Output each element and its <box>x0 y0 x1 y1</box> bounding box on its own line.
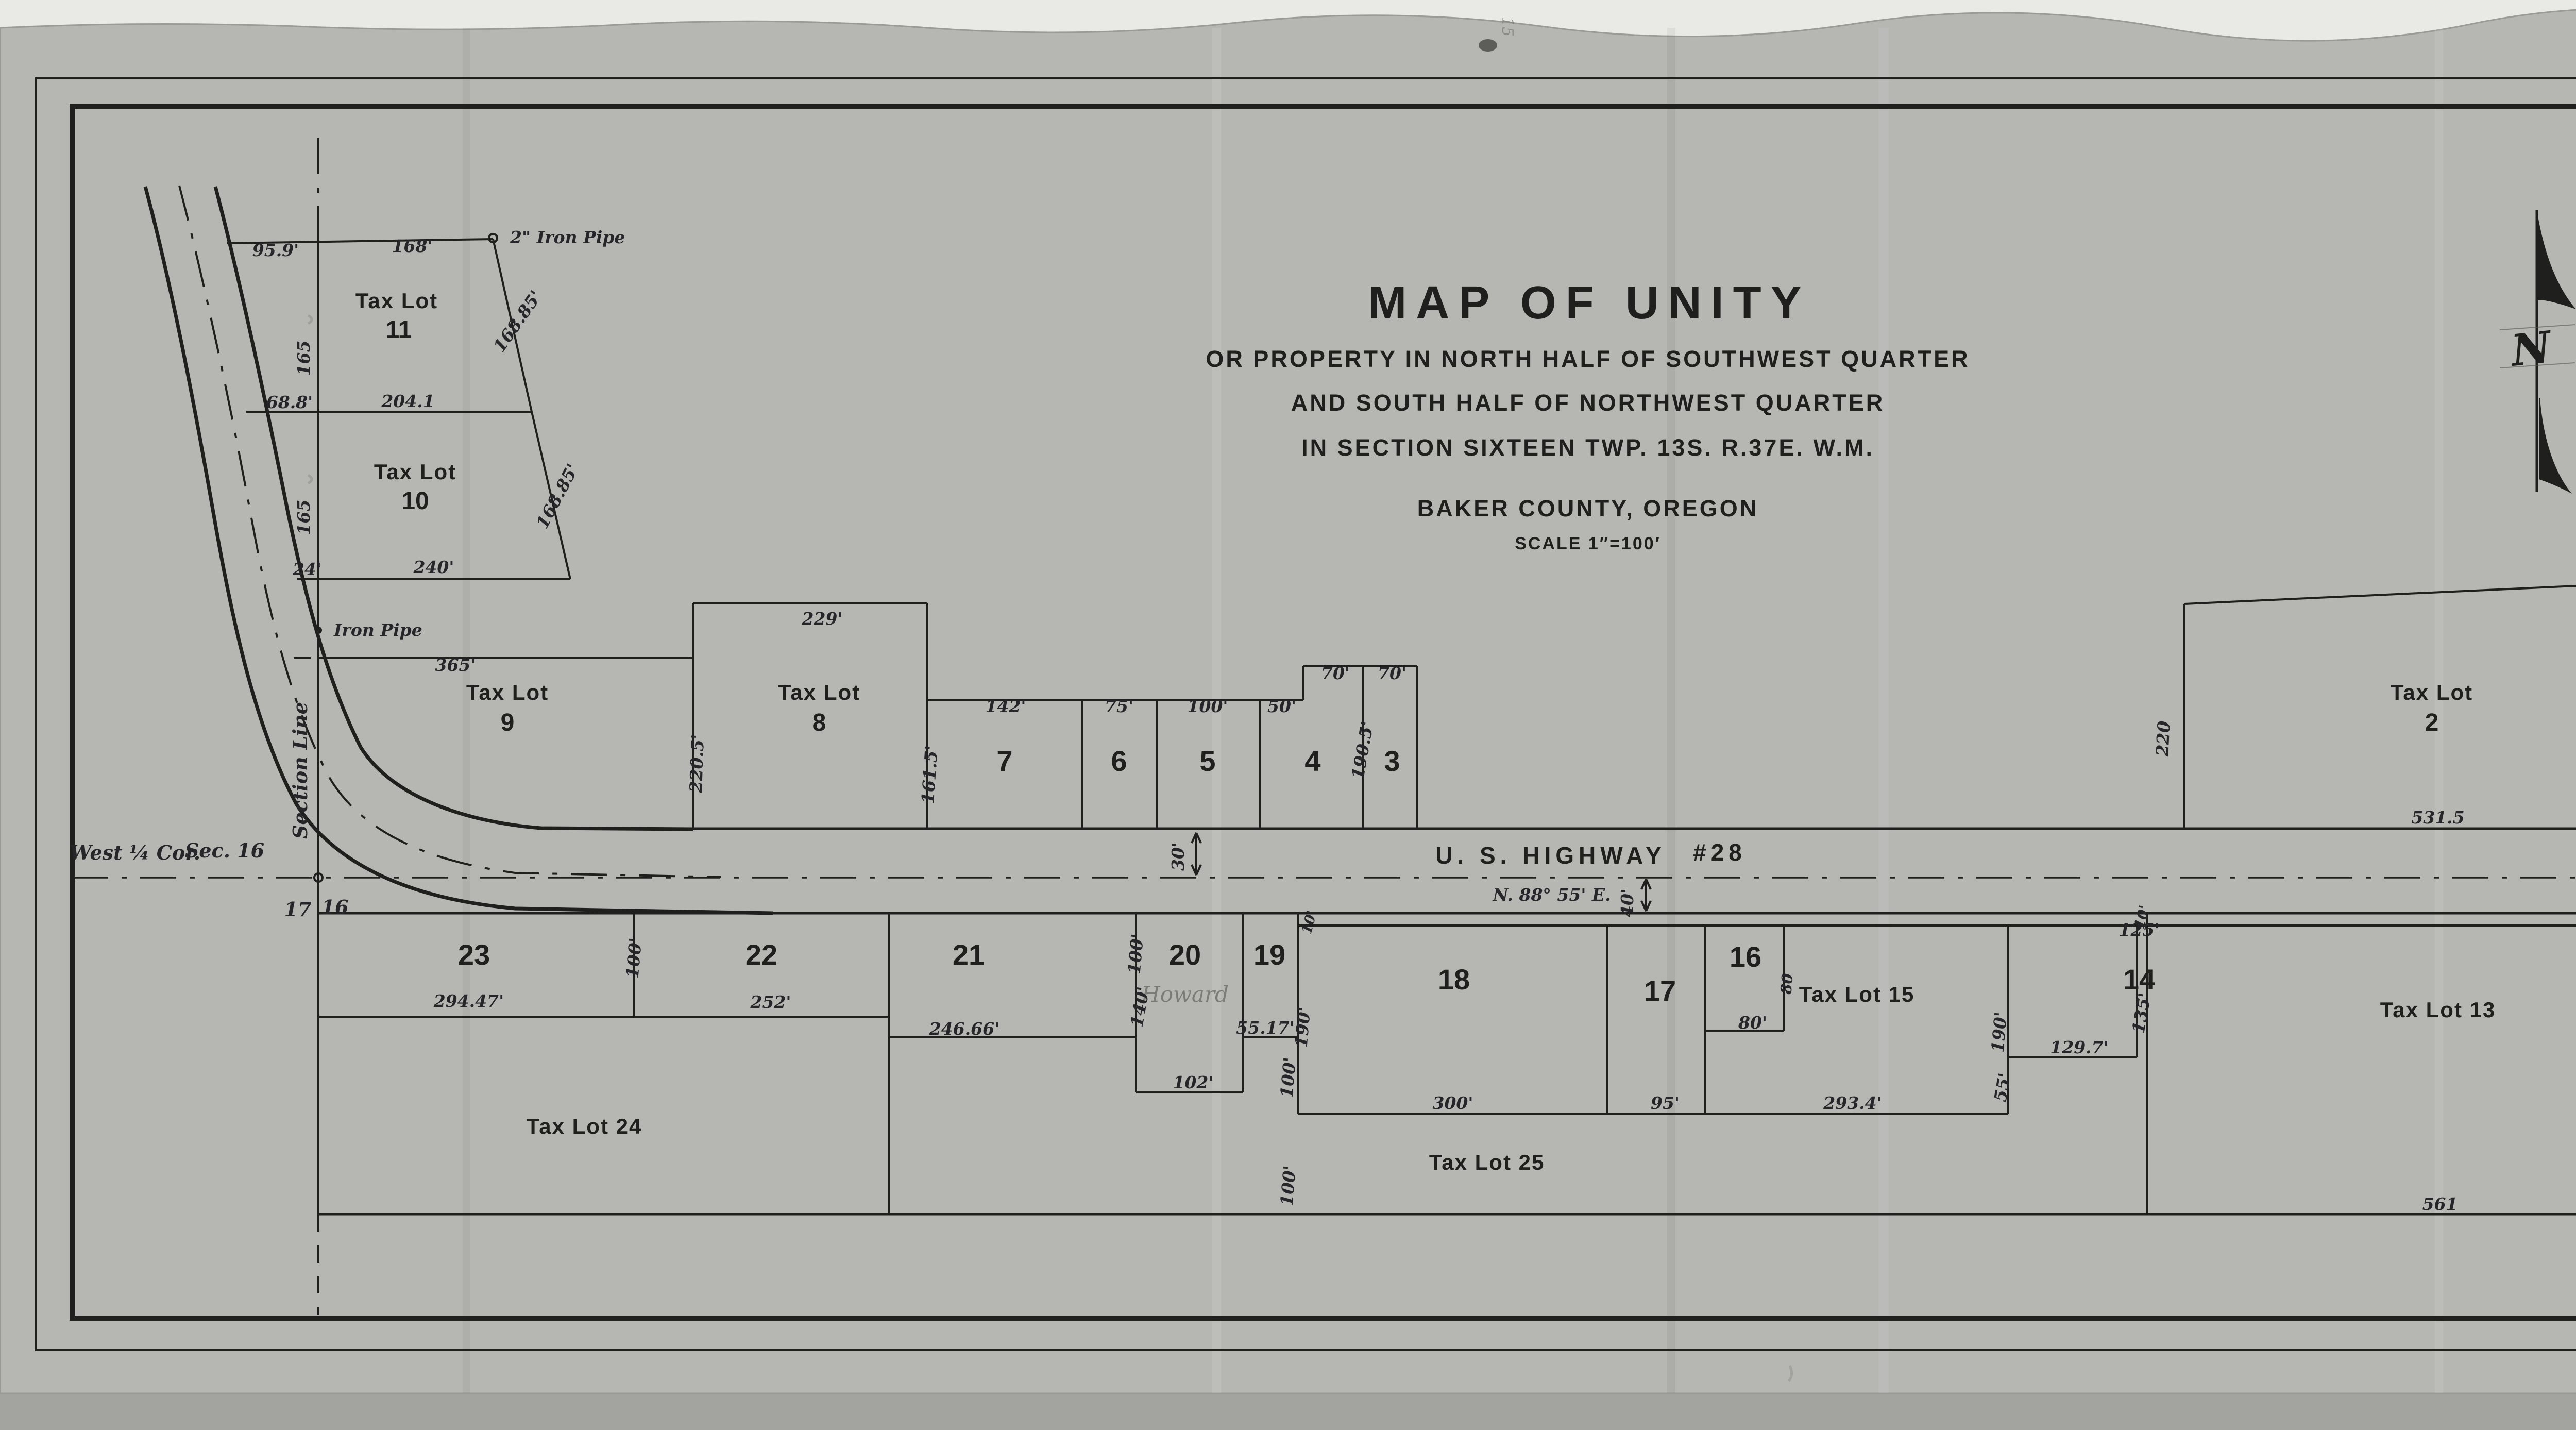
dim-24: 24' <box>292 559 321 579</box>
label-sec16-west: Sec. 16 <box>185 839 264 862</box>
dim-220: 220 <box>2152 720 2174 758</box>
dim-80-right: 80 <box>1777 973 1796 996</box>
lot24-name: Tax Lot 24 <box>527 1114 642 1138</box>
label-sec-17: 17 <box>284 898 312 921</box>
dim-204-1: 204.1 <box>381 391 434 411</box>
dim-168: 168' <box>392 236 433 256</box>
dim-300-lot18: 300' <box>1433 1093 1473 1113</box>
title-sub-1: OR PROPERTY IN NORTH HALF OF SOUTHWEST Q… <box>1206 346 1970 372</box>
dim-50: 50' <box>1267 696 1296 716</box>
dim-55-17: 55.17' <box>1236 1018 1294 1038</box>
ink-smudge <box>1479 39 1497 52</box>
lot9-name: Tax Lot <box>466 680 549 704</box>
map-title: MAP OF UNITY <box>1368 277 1810 329</box>
dim-102: 102' <box>1173 1072 1214 1092</box>
lot7-number: 7 <box>996 745 1012 777</box>
label-us-highway-number: #28 <box>1693 839 1747 866</box>
lot19-number: 19 <box>1253 938 1285 971</box>
lot10-number: 10 <box>401 487 429 515</box>
lot22-number: 22 <box>745 938 777 971</box>
lot13-name: Tax Lot 13 <box>2380 998 2496 1022</box>
pencil-sheet-note: 15 <box>1498 17 1516 37</box>
dim-30: 30' <box>1168 842 1188 871</box>
dim-129-7: 129.7' <box>2050 1037 2108 1057</box>
dim-531-5: 531.5 <box>2411 807 2464 828</box>
title-sub-3: IN SECTION SIXTEEN TWP. 13S. R.37E. W.M. <box>1301 434 1874 461</box>
dim-365: 365' <box>435 655 476 675</box>
dim-68-8: 68.8' <box>266 392 313 412</box>
dim-165-upper: 165 <box>294 341 314 376</box>
lot2-name: Tax Lot <box>2391 680 2473 704</box>
label-us-highway: U. S. HIGHWAY <box>1435 842 1666 869</box>
lot4-number: 4 <box>1304 745 1320 777</box>
dim-100-lot23: 100' <box>622 937 646 979</box>
title-county: BAKER COUNTY, OREGON <box>1417 495 1759 521</box>
dim-100-lot5: 100' <box>1188 696 1228 716</box>
dim-95: 95' <box>1651 1093 1680 1113</box>
lot14-number: 14 <box>2123 963 2155 996</box>
lot11-name: Tax Lot <box>355 289 438 313</box>
lot17-number: 17 <box>1644 974 1676 1007</box>
lot10-name: Tax Lot <box>374 460 456 484</box>
lot6-number: 6 <box>1111 745 1127 777</box>
iron-pipe-marker <box>315 627 322 634</box>
lot8-number: 8 <box>812 709 826 736</box>
label-west-quarter-cor: West ¼ Cor. <box>70 841 200 864</box>
dim-40: 40' <box>1617 888 1637 917</box>
label-section-line: Section Line <box>289 702 312 839</box>
north-arrow-letter: N <box>2507 321 2555 376</box>
lot23-number: 23 <box>458 938 490 971</box>
lot8-name: Tax Lot <box>778 680 860 704</box>
lot11-number: 11 <box>386 316 412 344</box>
lot3-number: 3 <box>1384 745 1400 777</box>
label-sec-16: 16 <box>321 896 349 919</box>
dim-75: 75' <box>1105 696 1133 716</box>
title-sub-2: AND SOUTH HALF OF NORTHWEST QUARTER <box>1291 390 1885 416</box>
dim-165-lower: 165 <box>294 500 314 535</box>
dim-70-b: 70' <box>1378 663 1406 683</box>
lot25-name: Tax Lot 25 <box>1429 1150 1545 1174</box>
lot20-number: 20 <box>1169 938 1201 971</box>
dim-246-66: 246.66' <box>929 1019 999 1039</box>
dim-161-5: 161.5' <box>918 745 942 804</box>
lot21-number: 21 <box>953 938 985 971</box>
dim-220-5: 220.5' <box>686 734 708 794</box>
dim-229: 229' <box>802 609 843 629</box>
dim-293-4: 293.4' <box>1823 1093 1882 1113</box>
lot9-number: 9 <box>501 709 515 736</box>
lot2-number: 2 <box>2425 709 2439 736</box>
label-2in-iron-pipe: 2" Iron Pipe <box>510 227 625 247</box>
dim-80-bottom: 80' <box>1738 1013 1767 1033</box>
dim-100-d: 100' <box>1277 1056 1300 1099</box>
dim-100-lot20: 100' <box>1124 933 1148 975</box>
dim-100-e: 100' <box>1277 1165 1300 1207</box>
lot15-name: Tax Lot 15 <box>1799 982 1915 1006</box>
dim-561: 561 <box>2422 1194 2458 1214</box>
title-scale: SCALE 1″=100′ <box>1515 534 1661 553</box>
map-of-unity-plat: MAP OF UNITYOR PROPERTY IN NORTH HALF OF… <box>0 0 2576 1430</box>
lot16-number: 16 <box>1730 940 1761 973</box>
label-bearing: N. 88° 55' E. <box>1492 885 1611 905</box>
dim-95-9: 95.9' <box>252 240 299 260</box>
dim-70-a: 70' <box>1321 663 1350 683</box>
lot5-number: 5 <box>1199 745 1215 777</box>
dim-252: 252' <box>750 992 791 1012</box>
dim-190-b: 190' <box>1988 1011 2011 1053</box>
dim-294-47: 294.47' <box>433 991 504 1011</box>
pencil-owner-name: Howard <box>1141 982 1229 1007</box>
dim-142: 142' <box>986 696 1026 716</box>
dim-190-a: 190' <box>1291 1006 1315 1048</box>
scanned-map-sheet: MAP OF UNITYOR PROPERTY IN NORTH HALF OF… <box>0 0 2576 1430</box>
label-iron-pipe: Iron Pipe <box>333 620 422 640</box>
lot18-number: 18 <box>1438 963 1470 996</box>
dim-240: 240' <box>413 557 454 577</box>
